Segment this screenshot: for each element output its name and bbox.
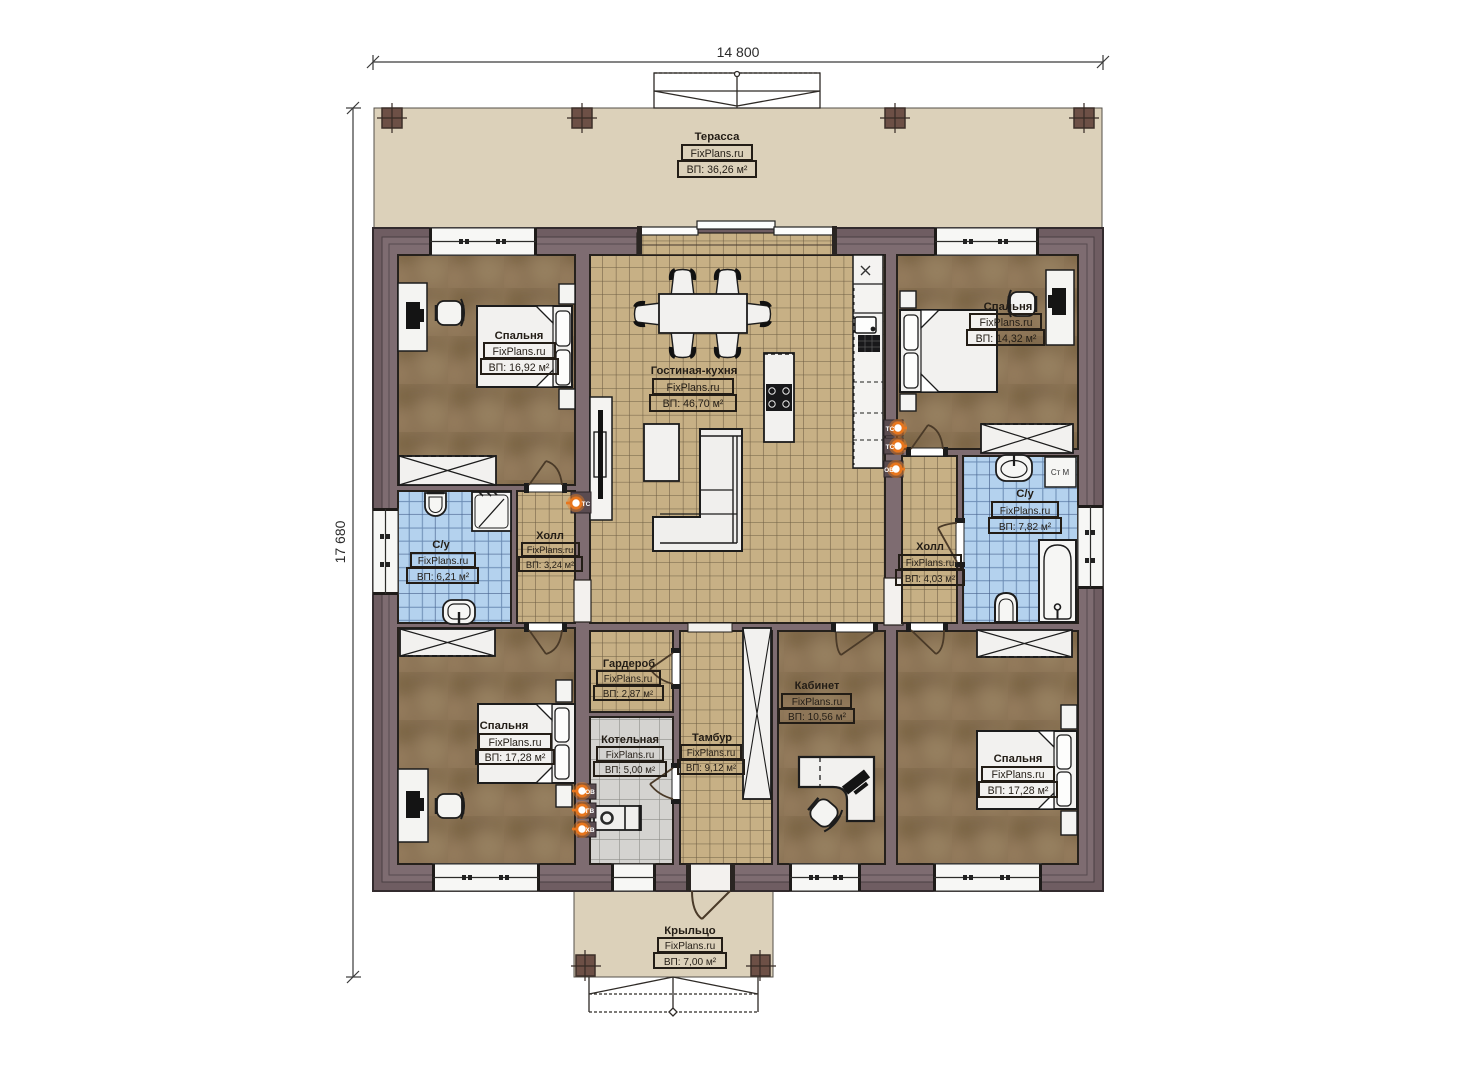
svg-text:Тамбур: Тамбур — [692, 732, 732, 744]
svg-text:ВП: 16,92 м²: ВП: 16,92 м² — [489, 362, 550, 374]
svg-text:Крыльцо: Крыльцо — [664, 925, 716, 937]
svg-text:Холл: Холл — [536, 530, 564, 542]
svg-text:FixPlans.ru: FixPlans.ru — [980, 317, 1033, 329]
svg-text:Ст М: Ст М — [1051, 468, 1070, 477]
svg-text:ВП: 5,00 м²: ВП: 5,00 м² — [605, 765, 656, 776]
svg-text:ВП: 10,56 м²: ВП: 10,56 м² — [788, 712, 847, 723]
svg-text:ВП: 9,12 м²: ВП: 9,12 м² — [686, 763, 737, 774]
svg-text:ВП: 6,21 м²: ВП: 6,21 м² — [417, 572, 470, 583]
svg-text:Спальня: Спальня — [984, 301, 1033, 313]
svg-text:Гардероб: Гардероб — [603, 658, 655, 670]
svg-text:Спальня: Спальня — [994, 753, 1043, 765]
svg-text:Спальня: Спальня — [495, 330, 544, 342]
svg-text:FixPlans.ru: FixPlans.ru — [691, 148, 744, 160]
svg-text:ОВ: ОВ — [585, 789, 595, 796]
svg-text:FixPlans.ru: FixPlans.ru — [1000, 506, 1050, 517]
svg-text:Кабинет: Кабинет — [795, 680, 840, 692]
svg-text:FixPlans.ru: FixPlans.ru — [906, 558, 954, 569]
svg-text:ВП: 46,70 м²: ВП: 46,70 м² — [663, 398, 724, 410]
svg-text:FixPlans.ru: FixPlans.ru — [992, 769, 1045, 781]
svg-text:FixPlans.ru: FixPlans.ru — [418, 556, 468, 567]
svg-text:ВП: 2,87 м²: ВП: 2,87 м² — [603, 689, 654, 700]
svg-text:FixPlans.ru: FixPlans.ru — [604, 674, 652, 685]
svg-text:FixPlans.ru: FixPlans.ru — [667, 382, 720, 394]
svg-text:ГВ: ГВ — [586, 808, 595, 815]
svg-text:ВП: 7,00 м²: ВП: 7,00 м² — [664, 957, 717, 968]
svg-text:ОВ: ОВ — [884, 467, 894, 474]
svg-text:FixPlans.ru: FixPlans.ru — [665, 941, 715, 952]
svg-text:ВП: 7,82 м²: ВП: 7,82 м² — [999, 522, 1052, 533]
svg-text:14 800: 14 800 — [717, 44, 760, 60]
svg-text:FixPlans.ru: FixPlans.ru — [493, 346, 546, 358]
svg-text:Терасса: Терасса — [695, 131, 741, 143]
svg-text:С/у: С/у — [432, 539, 450, 551]
svg-text:С/у: С/у — [1016, 488, 1034, 500]
svg-text:ВП: 3,24 м²: ВП: 3,24 м² — [526, 560, 574, 570]
svg-text:FixPlans.ru: FixPlans.ru — [687, 748, 735, 759]
svg-text:Спальня: Спальня — [480, 720, 529, 732]
svg-text:ТС: ТС — [886, 444, 895, 451]
svg-text:ВП: 17,28 м²: ВП: 17,28 м² — [988, 785, 1049, 797]
svg-text:FixPlans.ru: FixPlans.ru — [606, 750, 654, 761]
svg-text:ВП: 17,28 м²: ВП: 17,28 м² — [485, 752, 546, 764]
svg-text:FixPlans.ru: FixPlans.ru — [527, 545, 574, 555]
svg-text:Котельная: Котельная — [601, 734, 659, 746]
svg-text:ХВ: ХВ — [585, 827, 594, 834]
svg-text:Холл: Холл — [916, 541, 944, 553]
svg-text:ТС: ТС — [582, 501, 591, 508]
svg-text:ВП: 36,26 м²: ВП: 36,26 м² — [687, 164, 748, 176]
svg-text:FixPlans.ru: FixPlans.ru — [489, 737, 542, 749]
svg-text:ВП: 14,32 м²: ВП: 14,32 м² — [976, 333, 1037, 345]
svg-text:17 680: 17 680 — [332, 520, 348, 563]
svg-text:ВП: 4,03 м²: ВП: 4,03 м² — [905, 574, 956, 585]
svg-text:FixPlans.ru: FixPlans.ru — [792, 697, 842, 708]
svg-text:Гостиная-кухня: Гостиная-кухня — [651, 365, 738, 377]
svg-text:ТС: ТС — [886, 426, 895, 433]
